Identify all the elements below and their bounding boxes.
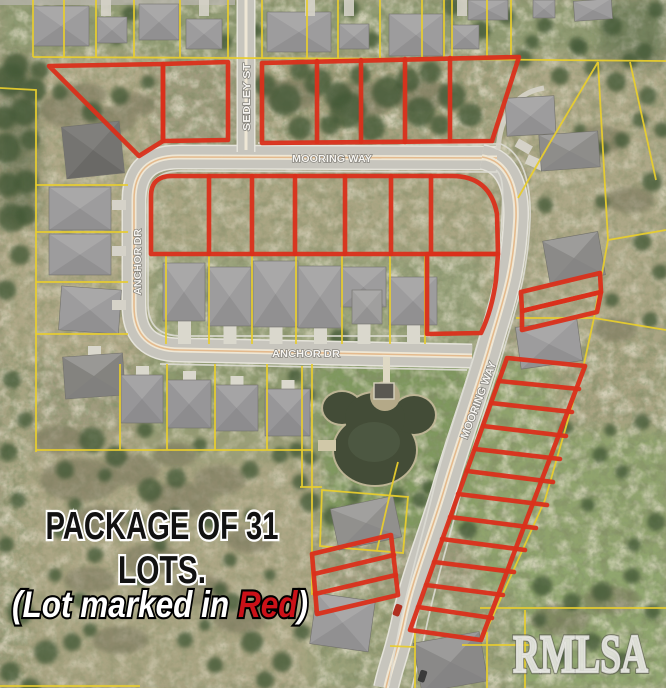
svg-text:SEDLEY ST: SEDLEY ST xyxy=(241,62,253,131)
svg-text:ANCHOR DR: ANCHOR DR xyxy=(272,348,340,360)
svg-text:PACKAGE OF 31: PACKAGE OF 31 xyxy=(46,505,279,548)
svg-text:(Lot marked in Red): (Lot marked in Red) xyxy=(12,584,308,625)
svg-text:RMLSA: RMLSA xyxy=(513,624,648,684)
svg-text:ANCHOR DR: ANCHOR DR xyxy=(132,229,144,295)
svg-text:MOORING WAY: MOORING WAY xyxy=(292,153,372,165)
